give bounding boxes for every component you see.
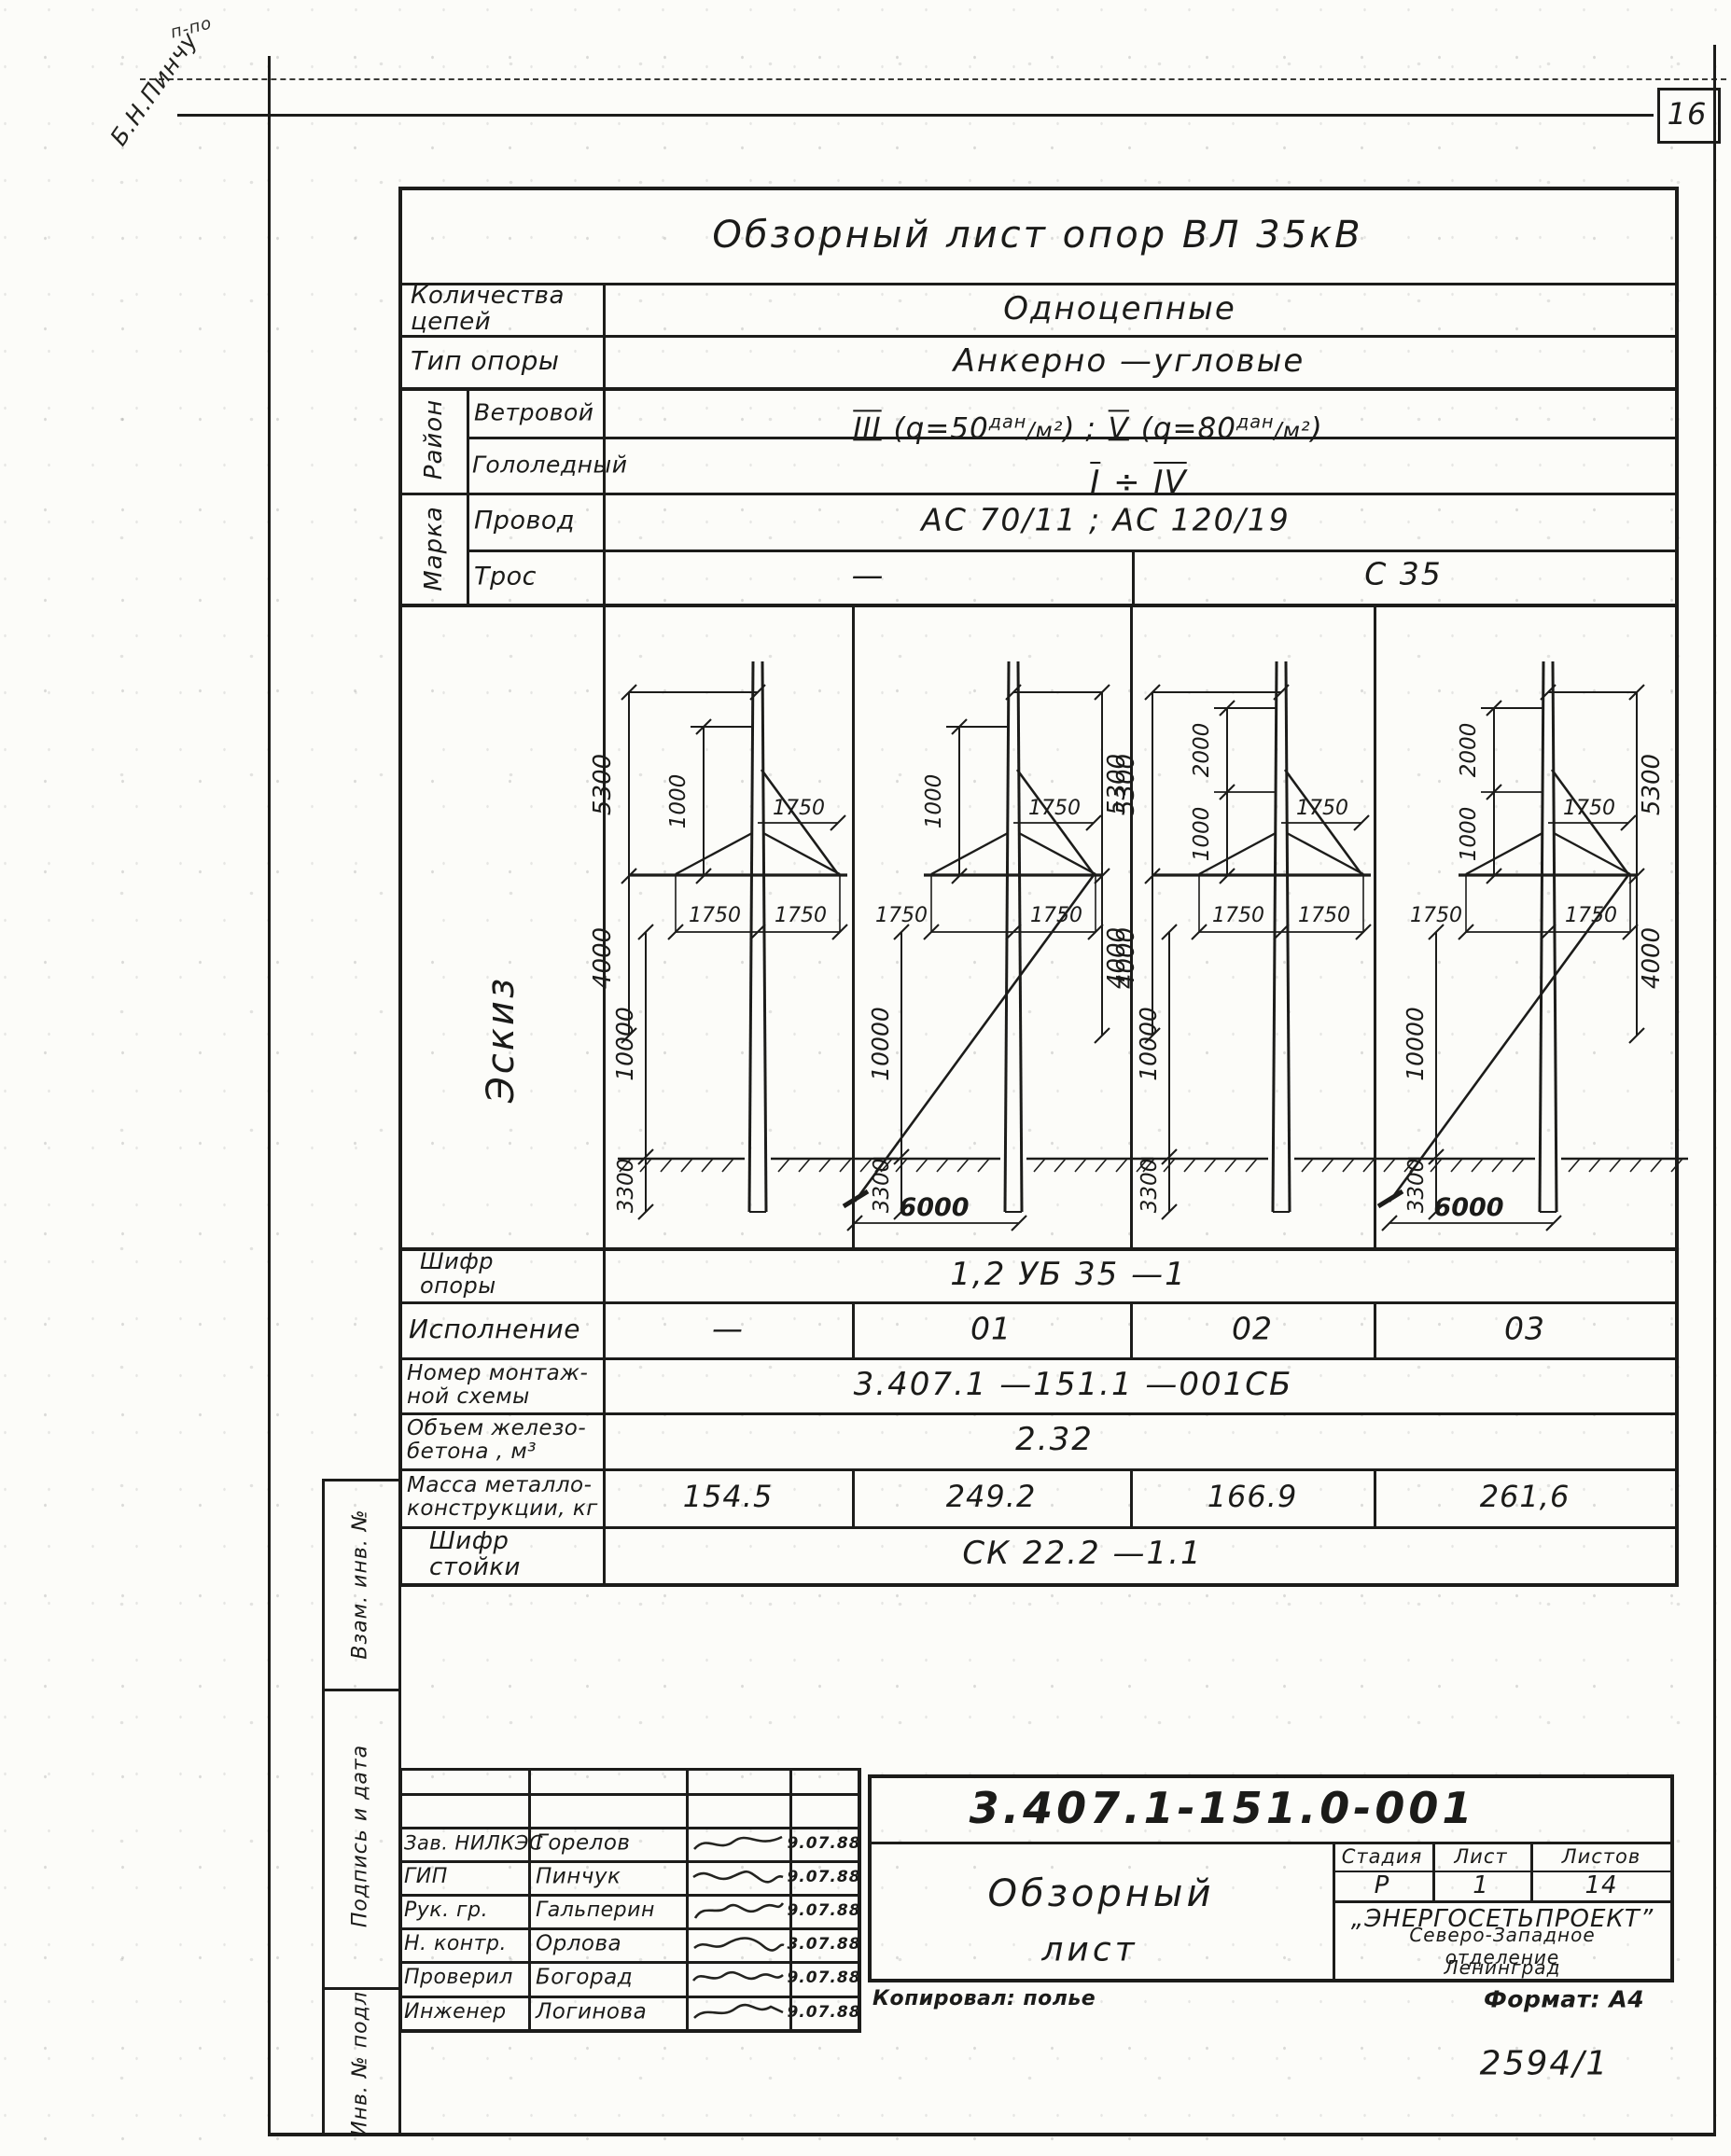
stamp-line xyxy=(868,1774,872,1982)
circuits-label: Количества цепей xyxy=(411,283,565,335)
pole-sketches: 5300400010001750175017501000033005300400… xyxy=(603,604,1675,1247)
sketch-line xyxy=(1378,1191,1403,1206)
sketch-line xyxy=(819,1159,831,1172)
wind-text: (q=50 xyxy=(884,412,989,446)
dim-label: 1000 xyxy=(922,774,946,829)
sketch-line xyxy=(1630,1159,1641,1172)
stamp-line xyxy=(868,1979,1674,1982)
support-type-label: Тип опоры xyxy=(411,347,559,375)
massa-label: Масса металло- конструкции, кг xyxy=(407,1474,598,1521)
table-line xyxy=(398,1468,1678,1471)
sketch-line xyxy=(1363,1159,1375,1172)
doc-title-line2: лист xyxy=(1041,1931,1138,1969)
sketch-line xyxy=(957,1159,969,1172)
sketch-line xyxy=(840,1159,851,1172)
sig-role: Инженер xyxy=(404,2001,507,2024)
sketch-line xyxy=(844,1191,868,1206)
table-line xyxy=(852,1468,855,1529)
cable-value-right: С 35 xyxy=(1364,556,1443,592)
handwriting-note: Б.Н.Пинчу xyxy=(105,27,202,151)
raion-label: Район xyxy=(420,399,448,480)
wind-denom: /м² xyxy=(1026,418,1063,444)
massa-value-0: 154.5 xyxy=(683,1479,774,1514)
right-frame-line xyxy=(1713,45,1716,2135)
stage-value: Р xyxy=(1375,1871,1390,1899)
sketch-line xyxy=(1651,1159,1662,1172)
margin-label-inv: Инв. № подл. xyxy=(349,1983,372,2136)
sketch-line xyxy=(681,1159,692,1172)
margin-line xyxy=(322,1689,401,1691)
sig-name: Горелов xyxy=(536,1832,630,1856)
sketch-line xyxy=(1569,1159,1580,1172)
dim-label: 6000 xyxy=(1433,1193,1503,1222)
left-frame-line xyxy=(268,56,271,2135)
sig-name: Орлова xyxy=(536,1933,621,1956)
dim-label: 4000 xyxy=(1638,927,1666,989)
circuits-value: Одноцепные xyxy=(1003,290,1236,327)
dim-label: 4000 xyxy=(1112,927,1140,989)
sketch-line xyxy=(1019,833,1096,874)
ispolnenie-label: Исполнение xyxy=(409,1315,580,1343)
sig-date: 9.07.88 xyxy=(787,1968,860,1987)
table-line xyxy=(398,1247,1678,1251)
table-line xyxy=(398,1301,1678,1304)
sketch-line xyxy=(1184,1159,1195,1172)
sketch-line xyxy=(1589,1159,1600,1172)
signature-scribble xyxy=(691,1898,786,1924)
table-line xyxy=(398,187,402,1587)
dim-label: 1750 xyxy=(1296,797,1348,820)
sig-role: Зав. НИЛКЭС xyxy=(404,1833,543,1855)
beton-label: Объем железо- бетона , м³ xyxy=(407,1417,586,1464)
signature-scribble xyxy=(691,1830,786,1857)
table-line xyxy=(1675,187,1679,1587)
table-line xyxy=(1130,1301,1133,1360)
sheets-label: Листов xyxy=(1562,1845,1640,1868)
table-line xyxy=(398,493,1678,495)
dim-label: 1000 xyxy=(1457,807,1481,862)
sketch-line xyxy=(1610,1159,1621,1172)
sig-line xyxy=(858,1768,861,2033)
montazh-label: Номер монтаж- ной схемы xyxy=(407,1362,588,1409)
sketch-line xyxy=(1285,770,1361,874)
sig-line xyxy=(686,1768,689,2033)
stamp-line xyxy=(1432,1842,1435,1903)
stamp-line xyxy=(1670,1774,1674,1982)
sketch-line xyxy=(1343,1159,1354,1172)
dim-label: 1750 xyxy=(1410,904,1462,927)
sketch-line xyxy=(676,833,752,874)
sketch-line xyxy=(1205,1159,1216,1172)
sketch-line xyxy=(1322,1159,1333,1172)
roman-numeral: III xyxy=(851,412,883,446)
table-line xyxy=(398,1357,1678,1360)
roman-numeral: I xyxy=(1088,464,1102,501)
dim-label: 3300 xyxy=(1138,1159,1162,1214)
table-line xyxy=(467,549,1678,552)
sketch-line xyxy=(722,1159,733,1172)
dim-label: 1750 xyxy=(1563,797,1615,820)
massa-value-1: 249.2 xyxy=(946,1479,1037,1514)
support-type-value: Анкерно —угловые xyxy=(954,342,1305,380)
org-city: Ленинград xyxy=(1445,1956,1561,1979)
dim-label: 1750 xyxy=(689,904,741,927)
table-line xyxy=(852,1301,855,1360)
sketch-line xyxy=(763,833,840,874)
dim-label: 5300 xyxy=(1638,754,1666,815)
sketch-line xyxy=(1554,833,1630,874)
dim-label: 4000 xyxy=(589,927,617,989)
stamp-line xyxy=(1530,1842,1533,1903)
wire-value: АС 70/11 ; АС 120/19 xyxy=(921,502,1291,538)
sketch-line xyxy=(931,833,1008,874)
dim-label: 1750 xyxy=(1212,904,1264,927)
doc-number: 3.407.1-151.0-001 xyxy=(970,1783,1476,1833)
margin-line xyxy=(322,1479,401,1481)
signature-scribble xyxy=(691,1966,786,1992)
sketch-line xyxy=(1017,770,1094,874)
page-number: 16 xyxy=(1668,96,1708,132)
dim-label: 10000 xyxy=(1135,1007,1162,1081)
sheet-value: 1 xyxy=(1473,1871,1489,1899)
marka-label: Марка xyxy=(420,506,448,591)
shifr-stoyki-value: СК 22.2 —1.1 xyxy=(962,1535,1202,1572)
sketch-line xyxy=(1302,1159,1313,1172)
table-line xyxy=(1374,1468,1376,1529)
sketch-line xyxy=(1513,1159,1524,1172)
sig-line xyxy=(528,1768,531,2033)
dim-label: 5300 xyxy=(1112,754,1140,815)
sketch-line xyxy=(1018,661,1022,1212)
ispolnenie-value-0: — xyxy=(712,1311,744,1347)
table-line xyxy=(1374,1301,1376,1360)
signature-scribble xyxy=(691,1864,786,1890)
dim-label: 1750 xyxy=(775,904,827,927)
dim-label: 1750 xyxy=(1030,904,1082,927)
stamp-line xyxy=(868,1842,1674,1844)
ispolnenie-value-3: 03 xyxy=(1504,1311,1545,1347)
sketch-line xyxy=(799,1159,810,1172)
sketch-line xyxy=(1096,1159,1107,1172)
shifr-opory-value: 1,2 УБ 35 —1 xyxy=(950,1256,1186,1293)
ispolnenie-value-1: 01 xyxy=(970,1311,1012,1347)
sketch-line xyxy=(761,770,838,874)
dim-label: 6000 xyxy=(899,1193,969,1222)
wind-denom: /м² xyxy=(1275,418,1311,444)
sketch-line xyxy=(1492,1159,1503,1172)
cable-value-left: — xyxy=(852,557,885,594)
sketch-line xyxy=(1246,1159,1257,1172)
sketch-line xyxy=(937,1159,948,1172)
beton-value: 2.32 xyxy=(1015,1421,1094,1458)
sketch-line xyxy=(978,1159,989,1172)
ispolnenie-value-2: 02 xyxy=(1232,1311,1273,1347)
sig-date: 9.07.88 xyxy=(787,1868,860,1886)
copied-by-note: Копировал: полье xyxy=(872,1988,1096,2010)
dim-label: 2000 xyxy=(1190,723,1214,778)
dim-label: 1750 xyxy=(1298,904,1350,927)
sig-role: ГИП xyxy=(404,1866,448,1888)
sig-line xyxy=(398,1768,402,2033)
format-note: Формат: А4 xyxy=(1484,1987,1644,2012)
sig-name: Пинчук xyxy=(536,1866,621,1889)
sheet-title: Обзорный лист опор ВЛ 35кВ xyxy=(712,214,1362,257)
sketch-line xyxy=(1451,1159,1462,1172)
sig-line xyxy=(789,1768,792,2033)
table-line xyxy=(467,387,469,606)
shifr-stoyki-label: Шифр стойки xyxy=(429,1528,521,1580)
stamp-line xyxy=(1333,1842,1335,1982)
wire-label: Провод xyxy=(474,507,575,534)
scanned-drawing-sheet: 16 п-по Б.Н.Пинчу Обзорный лист опор ВЛ … xyxy=(0,0,1731,2156)
sketch-line xyxy=(1116,1159,1127,1172)
top-rule-line xyxy=(177,114,1654,117)
dim-label: 10000 xyxy=(1402,1007,1429,1081)
wind-sup: дан xyxy=(989,410,1027,432)
table-line xyxy=(398,1526,1678,1529)
sig-date: 9.07.88 xyxy=(787,1901,860,1920)
sketch-line xyxy=(916,1159,928,1172)
doc-title-line1: Обзорный xyxy=(987,1872,1214,1915)
sketch-line xyxy=(1287,833,1363,874)
sig-date: 3.07.88 xyxy=(787,1935,860,1954)
ice-sep: ÷ xyxy=(1102,464,1152,501)
dim-label: 3300 xyxy=(614,1159,638,1214)
sketch-line xyxy=(1552,770,1628,874)
sig-role: Рук. гр. xyxy=(404,1899,488,1922)
sig-role: Н. контр. xyxy=(404,1933,507,1955)
margin-line xyxy=(322,1479,325,2134)
sketch-line xyxy=(1054,1159,1066,1172)
stamp-line xyxy=(1333,1900,1674,1903)
dim-label: 1750 xyxy=(773,797,825,820)
sketch-line xyxy=(702,1159,713,1172)
massa-value-3: 261,6 xyxy=(1480,1479,1570,1514)
wind-region-value: III (q=50дан/м²) ; V (q=80дан/м²) xyxy=(851,377,1322,445)
eskiz-label: Эскиз xyxy=(480,976,523,1103)
dim-label: 1750 xyxy=(875,904,928,927)
roman-numeral: IV xyxy=(1152,464,1188,501)
table-line xyxy=(398,1583,1678,1587)
table-line xyxy=(1132,549,1135,606)
sketch-line xyxy=(762,661,766,1212)
sketch-line xyxy=(1225,1159,1236,1172)
montazh-value: 3.407.1 —151.1 —001СБ xyxy=(854,1366,1293,1403)
bottom-frame-line xyxy=(268,2133,1716,2136)
sketch-line xyxy=(1034,1159,1045,1172)
massa-value-2: 166.9 xyxy=(1208,1479,1298,1514)
sketch-line xyxy=(778,1159,789,1172)
sig-date: 9.07.88 xyxy=(787,1834,860,1853)
dim-label: 1000 xyxy=(1190,807,1214,862)
ice-region-value: I ÷ IV xyxy=(1088,426,1188,501)
table-line xyxy=(398,187,1678,190)
stage-label: Стадия xyxy=(1342,1845,1423,1868)
archive-number: 2594/1 xyxy=(1480,2045,1610,2083)
cable-label: Трос xyxy=(474,563,537,590)
dim-label: 1750 xyxy=(1028,797,1081,820)
dim-label: 1000 xyxy=(666,774,691,829)
table-line xyxy=(398,1412,1678,1415)
dim-label: 5300 xyxy=(589,754,617,815)
margin-label-vzam: Взам. инв. № xyxy=(349,1509,372,1659)
wind-sup: дан xyxy=(1236,410,1275,432)
margin-label-podpis: Подпись и дата xyxy=(349,1745,372,1927)
sig-name: Гальперин xyxy=(536,1899,655,1922)
signature-scribble xyxy=(691,1999,786,2025)
sig-date: 9.07.88 xyxy=(787,2003,860,2022)
sig-name: Богорад xyxy=(536,1967,633,1990)
sketch-line xyxy=(661,1159,672,1172)
stamp-line xyxy=(868,1774,1674,1778)
top-dashed-line xyxy=(140,78,1726,80)
table-line xyxy=(398,283,1678,285)
signature-scribble xyxy=(691,1931,786,1957)
table-line xyxy=(398,335,1678,338)
wind-region-label: Ветровой xyxy=(474,400,594,425)
sig-role: Проверил xyxy=(404,1967,513,1989)
sketch-line xyxy=(1553,661,1557,1212)
sheet-label: Лист xyxy=(1454,1845,1507,1868)
sketch-line xyxy=(1384,1159,1395,1172)
ice-region-label: Гололедный xyxy=(472,452,627,478)
sketch-line xyxy=(1472,1159,1483,1172)
table-line xyxy=(1130,1468,1133,1529)
sheets-value: 14 xyxy=(1584,1871,1617,1899)
sketch-line xyxy=(1286,661,1290,1212)
sig-name: Логинова xyxy=(536,2001,647,2024)
dim-label: 10000 xyxy=(867,1007,894,1081)
dim-label: 10000 xyxy=(611,1007,638,1081)
dim-label: 2000 xyxy=(1457,723,1481,778)
sketch-line xyxy=(1075,1159,1086,1172)
shifr-opory-label: Шифр опоры xyxy=(420,1250,496,1299)
wind-text: ) xyxy=(1311,412,1323,446)
dim-label: 1750 xyxy=(1565,904,1617,927)
